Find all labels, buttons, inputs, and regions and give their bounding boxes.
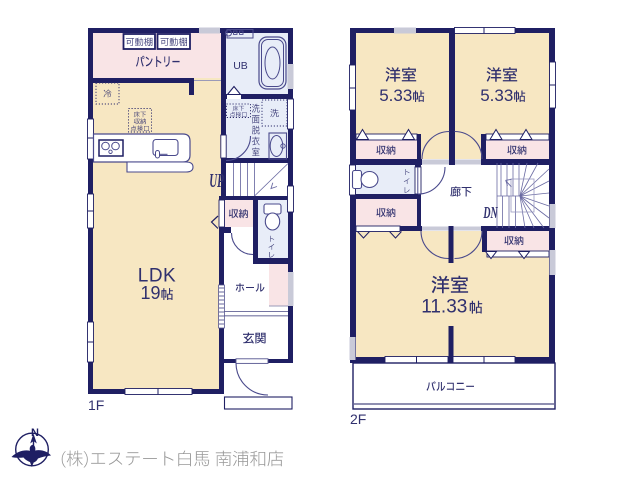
svg-text:2F: 2F xyxy=(350,411,366,427)
svg-text:1F: 1F xyxy=(88,397,104,413)
svg-text:UB: UB xyxy=(233,60,248,72)
svg-text:DN: DN xyxy=(483,203,499,221)
svg-text:19: 19 xyxy=(140,283,160,303)
svg-text:11.33: 11.33 xyxy=(421,297,467,318)
svg-text:5.33: 5.33 xyxy=(480,86,513,105)
svg-text:UP: UP xyxy=(209,171,224,192)
svg-text:N: N xyxy=(31,427,39,439)
svg-text:5.33: 5.33 xyxy=(379,86,412,105)
